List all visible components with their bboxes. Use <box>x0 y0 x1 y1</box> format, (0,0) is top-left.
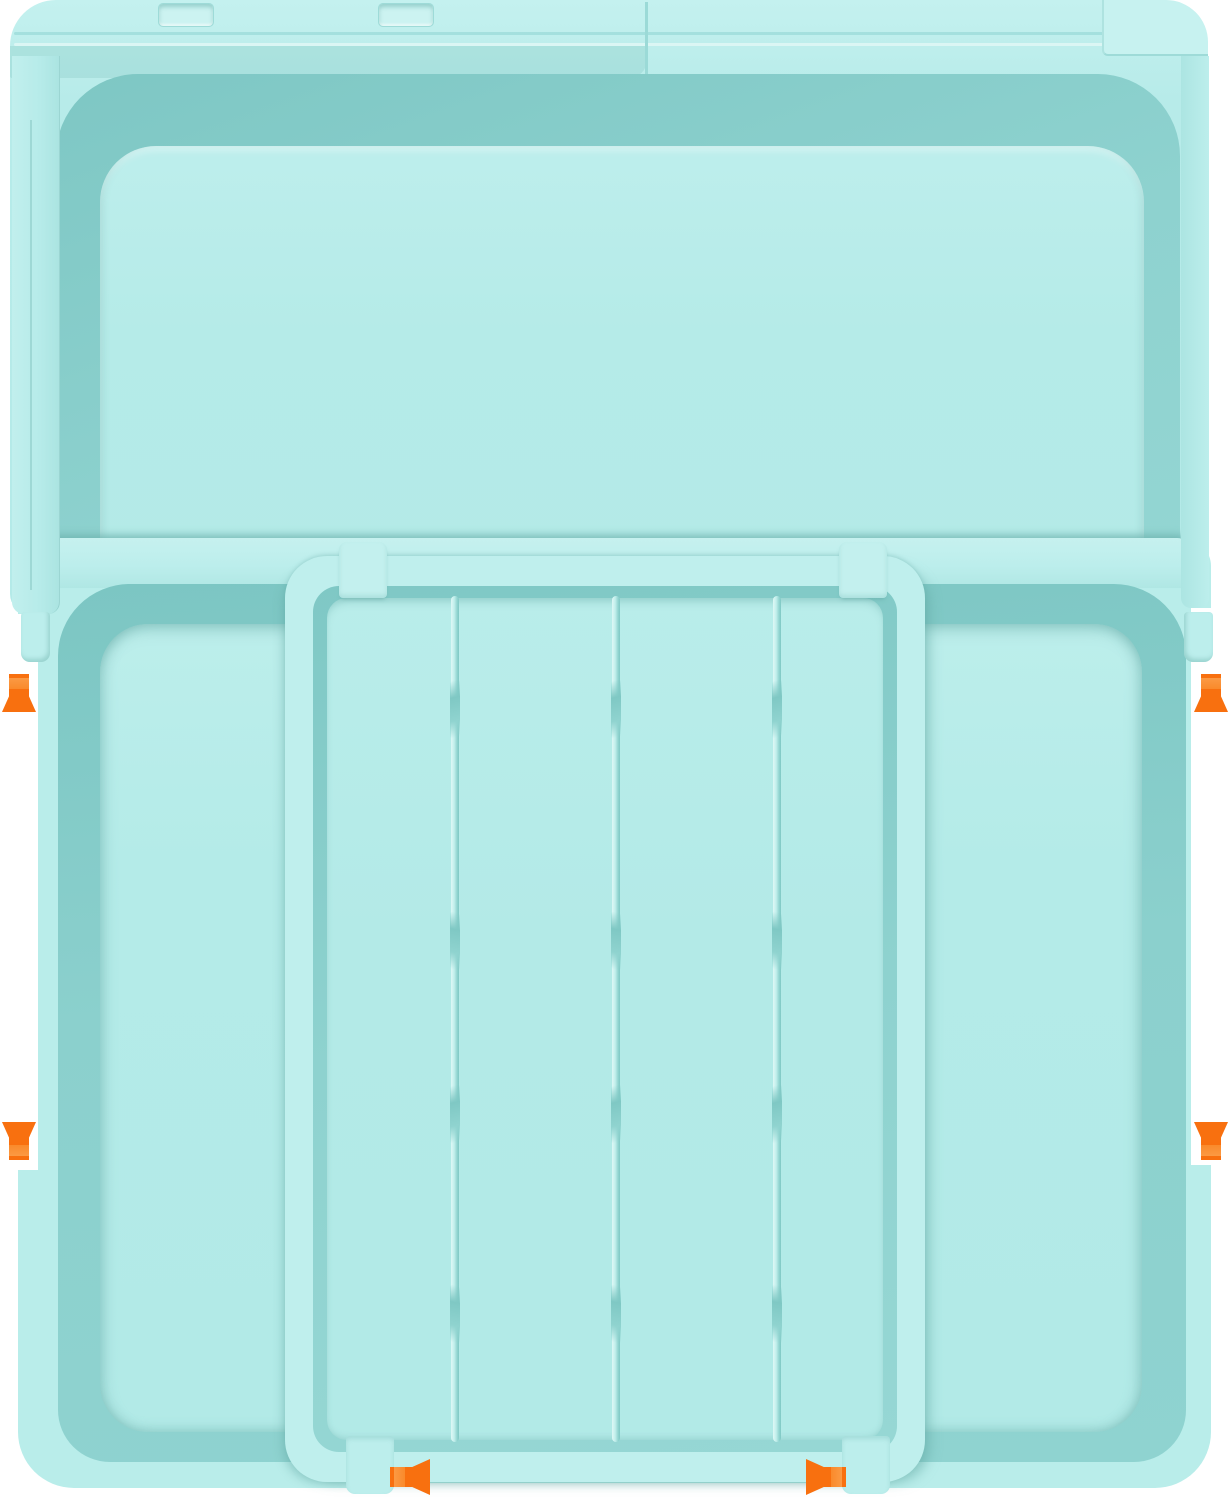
lid-ridge-line <box>14 32 1202 35</box>
divider-joint <box>772 1084 782 1144</box>
center-tray-floor <box>327 598 883 1440</box>
divider-joint <box>772 911 782 971</box>
divider-joint <box>772 679 782 739</box>
divider-joint <box>450 1284 460 1344</box>
expand-arrow-left-icon <box>390 1459 498 1495</box>
tray-tab-top-right <box>839 542 887 598</box>
tray-tab-bottom-left <box>346 1436 394 1494</box>
lid-expansion-seam <box>645 2 648 78</box>
divider-joint <box>450 679 460 739</box>
tray-divider-2 <box>612 596 620 1442</box>
divider-joint <box>611 1284 621 1344</box>
expand-arrow-up-icon <box>1194 674 1228 782</box>
lid-left-flank-seam <box>30 120 32 590</box>
tray-divider-3 <box>773 596 781 1442</box>
divider-joint <box>611 679 621 739</box>
expand-arrow-up-icon <box>2 674 36 782</box>
expand-arrow-right-icon <box>738 1459 846 1495</box>
divider-joint <box>450 1084 460 1144</box>
lid-latch-slot-2 <box>378 3 434 27</box>
divider-joint <box>772 1284 782 1344</box>
divider-joint <box>450 911 460 971</box>
slide-tab-right <box>1184 612 1213 662</box>
divider-joint <box>611 1084 621 1144</box>
lid-right-flank <box>1181 56 1209 608</box>
tray-tab-bottom-right <box>842 1436 890 1494</box>
lid-left-flank <box>12 56 60 614</box>
expand-arrow-down-icon <box>1194 1052 1228 1160</box>
product-image-expandable-organizer <box>0 0 1231 1500</box>
tray-divider-1 <box>451 596 459 1442</box>
divider-joint <box>611 911 621 971</box>
slide-tab-left <box>21 612 50 662</box>
lid-corner-piece <box>1102 0 1208 56</box>
expand-arrow-down-icon <box>2 1052 36 1160</box>
tray-tab-top-left <box>339 542 387 598</box>
lid-latch-slot-1 <box>158 3 214 27</box>
